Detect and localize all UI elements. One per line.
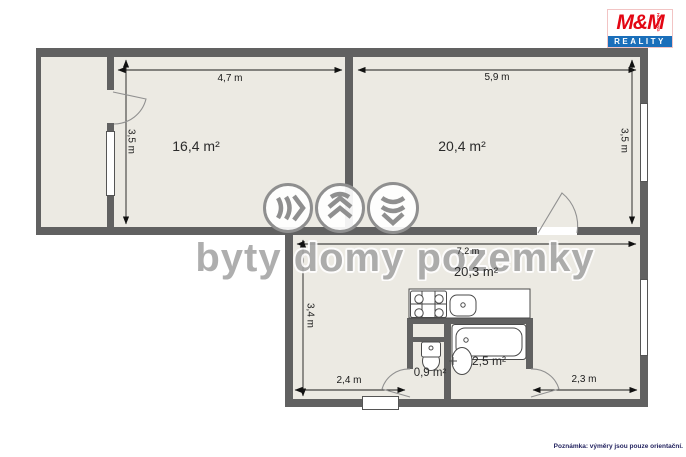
footnote: Poznámka: výměry jsou pouze orientační. — [483, 443, 683, 450]
dim-label-living-right: 2,3 m — [554, 374, 614, 385]
dim-label-living-width: 7,2 m — [443, 246, 493, 256]
dim-label-room2-width: 5,9 m — [462, 72, 532, 83]
area-label-bathroom: 2,5 m² — [464, 354, 514, 368]
door-arc-room2 — [538, 193, 578, 233]
logo-reality-bar: REALITY — [608, 36, 672, 47]
logo-mm: M&M HOLDING — [608, 10, 672, 36]
area-label-room1: 16,4 m² — [146, 138, 246, 154]
mm-reality-logo: M&M HOLDING REALITY — [607, 9, 673, 48]
dim-label-hall-width: 2,4 m — [319, 375, 379, 386]
dim-label-room1-width: 4,7 m — [195, 73, 265, 84]
area-label-room2: 20,4 m² — [412, 138, 512, 154]
dim-label-room1-height: 3,5 m — [126, 117, 137, 167]
watermark-badge-3 — [367, 182, 419, 234]
watermark-badge-2 — [315, 183, 365, 233]
watermark-text: byty domy pozemky — [100, 236, 686, 281]
chevrons-up-icon — [318, 186, 362, 230]
watermark-badge-1 — [263, 183, 313, 233]
area-label-wc: 0,9 m² — [405, 367, 455, 379]
chevrons-down-icon — [371, 186, 415, 230]
floor-plan: 4,7 m 3,5 m 5,9 m 3,5 m 7,2 m 3,4 m 2,4 … — [0, 0, 686, 457]
area-label-living: 20,3 m² — [426, 264, 526, 279]
chevrons-right-icon — [266, 186, 310, 230]
sink-icon — [450, 295, 476, 316]
dim-label-living-height: 3,4 m — [305, 291, 316, 341]
dim-label-room2-height: 3,5 m — [619, 116, 630, 166]
logo-holding-text: HOLDING — [646, 13, 671, 31]
stove-icon — [411, 291, 447, 318]
